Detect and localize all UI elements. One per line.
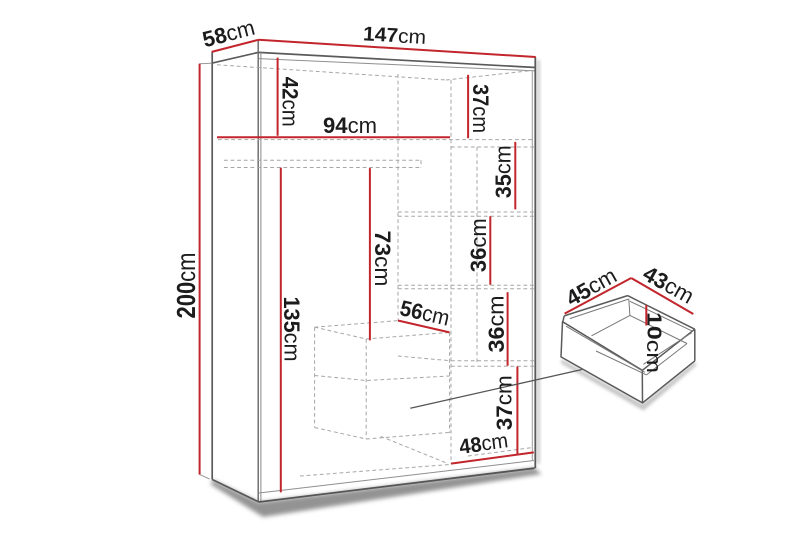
svg-text:147cm: 147cm: [362, 24, 426, 49]
svg-text:94cm: 94cm: [323, 113, 377, 138]
svg-text:200cm: 200cm: [171, 253, 201, 319]
svg-text:35cm: 35cm: [491, 145, 516, 198]
svg-text:37cm: 37cm: [468, 84, 493, 133]
svg-text:36cm: 36cm: [484, 296, 509, 353]
svg-text:37cm: 37cm: [492, 375, 517, 430]
svg-text:36cm: 36cm: [466, 218, 491, 272]
svg-text:42cm: 42cm: [277, 77, 302, 127]
svg-text:73cm: 73cm: [370, 231, 395, 287]
svg-text:135cm: 135cm: [279, 297, 304, 362]
svg-text:10cm: 10cm: [642, 312, 664, 373]
